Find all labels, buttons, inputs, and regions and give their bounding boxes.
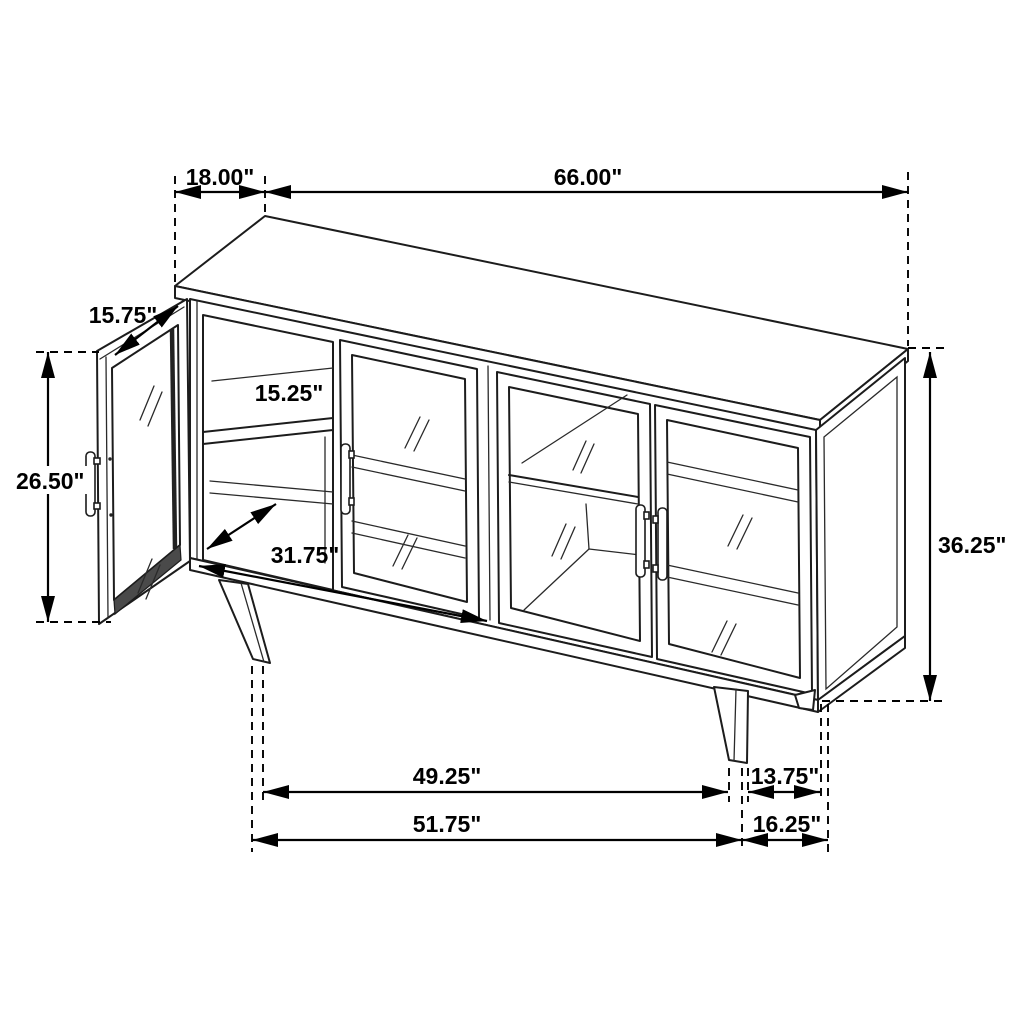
dim-overall-height: 36.25" [930, 352, 1006, 701]
dim-leg-span-outer: 51.75" [252, 811, 742, 840]
dim-label-interior-width: 31.75" [271, 542, 339, 568]
dim-top-depth: 18.00" [175, 164, 265, 192]
dim-side-depth-inner: 13.75" [748, 763, 820, 792]
front-right-leg [714, 687, 748, 763]
dim-door-height: 26.50" [13, 352, 93, 622]
front-left-leg [219, 580, 270, 663]
glass-pane [509, 387, 640, 641]
dim-label-side-depth-inner: 13.75" [751, 763, 819, 789]
dim-leg-span-inner: 49.25" [263, 763, 728, 792]
dim-label-door-height: 26.50" [16, 468, 84, 494]
dim-label-top-depth: 18.00" [186, 164, 254, 190]
dim-label-shelf-depth: 15.25" [255, 380, 323, 406]
glass-door-4 [655, 405, 812, 694]
open-glass-door-1 [86, 299, 190, 624]
dim-label-door-width: 15.75" [89, 302, 157, 328]
glass-pane [667, 420, 800, 678]
dim-top-width: 66.00" [265, 164, 908, 192]
glass-pane [352, 355, 467, 602]
dim-label-leg-span-outer: 51.75" [413, 811, 481, 837]
dim-side-depth-outer: 16.25" [742, 811, 828, 840]
glass-door-3 [497, 372, 652, 657]
cabinet-drawing-svg: 18.00" 66.00" 15.75" 26.50" 15.25" 31.75… [0, 0, 1024, 1024]
glass-door-2 [340, 340, 479, 618]
dim-label-top-width: 66.00" [554, 164, 622, 190]
dimension-diagram: 18.00" 66.00" 15.75" 26.50" 15.25" 31.75… [0, 0, 1024, 1024]
dim-label-side-depth-outer: 16.25" [753, 811, 821, 837]
dim-label-leg-span-inner: 49.25" [413, 763, 481, 789]
cabinet-illustration [86, 216, 908, 763]
dim-label-overall-height: 36.25" [938, 532, 1006, 558]
